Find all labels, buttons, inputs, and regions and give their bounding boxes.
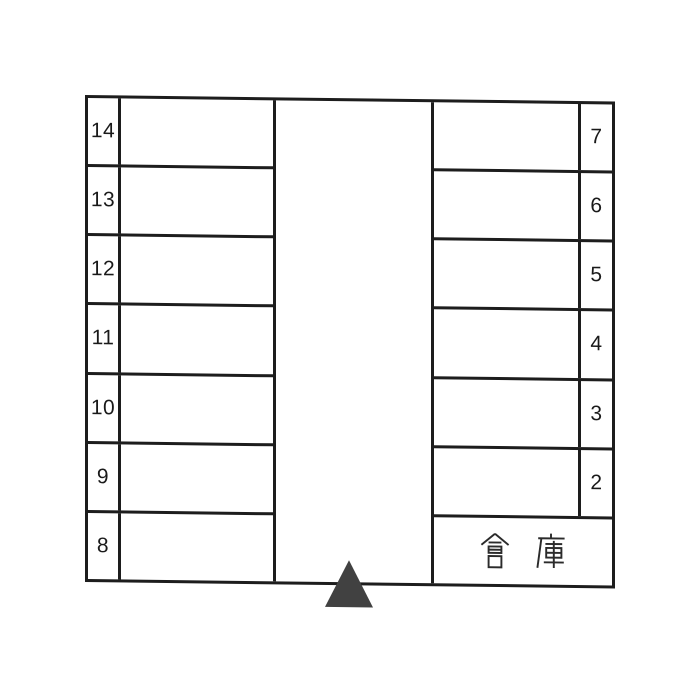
parking-stall-6: 6 bbox=[434, 171, 612, 242]
stall-space bbox=[121, 513, 273, 581]
stall-number: 4 bbox=[578, 311, 612, 378]
parking-stall-13: 13 bbox=[88, 167, 273, 238]
stall-space bbox=[121, 98, 273, 166]
parking-stall-10: 10 bbox=[88, 375, 273, 446]
parking-stall-5: 5 bbox=[434, 241, 612, 312]
parking-layout-canvas: 14 13 12 11 10 9 bbox=[0, 0, 700, 700]
stall-number: 5 bbox=[578, 242, 612, 309]
stall-number: 10 bbox=[88, 375, 121, 442]
parking-lot-diagram: 14 13 12 11 10 9 bbox=[85, 95, 615, 588]
parking-stall-8: 8 bbox=[88, 513, 273, 581]
parking-stall-3: 3 bbox=[434, 379, 612, 450]
parking-stall-12: 12 bbox=[88, 236, 273, 307]
right-stall-column: 7 6 5 4 3 2 倉 庫 bbox=[431, 102, 612, 585]
kanji-sou-icon bbox=[479, 532, 511, 569]
stall-space bbox=[434, 102, 578, 170]
left-stall-column: 14 13 12 11 10 9 bbox=[88, 98, 276, 581]
stall-space bbox=[121, 444, 273, 512]
parking-stall-11: 11 bbox=[88, 305, 273, 376]
storage-room: 倉 庫 bbox=[434, 517, 612, 585]
stall-number: 3 bbox=[578, 381, 612, 448]
stall-space bbox=[434, 379, 578, 447]
stall-number: 6 bbox=[578, 173, 612, 240]
stall-number: 14 bbox=[88, 98, 121, 165]
stall-space bbox=[121, 375, 273, 443]
stall-number: 2 bbox=[578, 450, 612, 517]
stall-number: 12 bbox=[88, 236, 121, 303]
stall-space bbox=[121, 237, 273, 305]
stall-number: 7 bbox=[578, 104, 612, 171]
parking-stall-7: 7 bbox=[434, 102, 612, 173]
stall-number: 13 bbox=[88, 167, 121, 234]
entrance-triangle-icon bbox=[325, 560, 373, 608]
stall-space bbox=[121, 168, 273, 236]
stall-space bbox=[121, 306, 273, 374]
parking-stall-14: 14 bbox=[88, 98, 273, 169]
parking-stall-9: 9 bbox=[88, 444, 273, 515]
stall-space bbox=[434, 241, 578, 309]
kanji-ko-icon bbox=[535, 533, 567, 570]
parking-stall-4: 4 bbox=[434, 310, 612, 381]
storage-label-text: 倉 庫 bbox=[523, 551, 524, 552]
parking-stall-2: 2 bbox=[434, 448, 612, 519]
stall-space bbox=[434, 310, 578, 378]
stall-space bbox=[434, 171, 578, 239]
stall-number: 8 bbox=[88, 513, 121, 580]
stall-space bbox=[434, 448, 578, 516]
stall-number: 9 bbox=[88, 444, 121, 511]
stall-number: 11 bbox=[88, 305, 121, 372]
